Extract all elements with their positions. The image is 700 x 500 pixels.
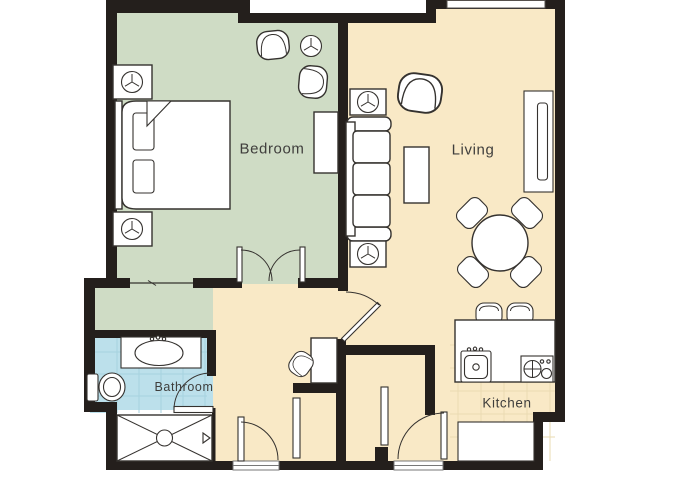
armchair-icon [396,71,444,114]
wall-bottom-3 [443,461,543,470]
armchair-icon [298,65,329,99]
desk-icon [311,338,337,383]
wall-step-bottom-left-v [106,402,117,470]
sofa-cushion [353,163,390,195]
closet-door-leaf [381,387,388,445]
window-icon [447,1,545,9]
nightstand-lamp-icon [113,212,152,246]
closet-floor [90,283,214,335]
tv-console-icon [524,91,553,192]
wall-vestibule-top [346,345,435,355]
vanity-sink-icon [121,336,201,368]
entry-sill-left [233,461,279,470]
sofa-icon [346,117,391,241]
armchair-icon [256,29,291,60]
end-table-lamp-icon [350,89,386,115]
floor-plan-canvas: Bedroom Living Bathroom Kitchen [0,0,700,500]
bed-headboard [115,101,122,209]
wall-top-bedroom [106,0,250,13]
coffee-table-icon [404,147,429,203]
wall-bottom-1 [106,461,233,470]
dresser-icon [314,112,338,173]
closet-door-leaf [293,398,300,458]
shower-icon [117,415,212,461]
wall-vestibule-right [425,345,435,415]
wall-right [555,0,565,421]
sofa-cushion [353,195,390,227]
pillow-icon [133,160,154,193]
wall-stub-entry [375,447,388,461]
end-table-lamp-icon [350,241,386,267]
kitchen-counter-icon [458,422,534,461]
kitchen-label: Kitchen [482,396,531,411]
floor-lamp-icon [301,36,322,57]
toilet-icon [87,373,125,401]
wall-desk-nook [293,383,346,393]
wall-bedroom-closet-1 [84,278,130,288]
entry-sill-right [394,461,443,470]
wall-notch-bottom [238,13,436,23]
floor-plan [0,0,700,500]
living-label: Living [452,142,495,159]
tv-icon [538,103,548,180]
bathroom-label: Bathroom [155,380,214,394]
sofa-cushion [353,131,390,163]
bedroom-label: Bedroom [239,141,304,158]
wall-bathroom-right [207,330,216,376]
wall-bottom-2 [279,461,394,470]
dining-table-icon [472,215,528,271]
nightstand-lamp-icon [113,65,152,99]
stove-icon [521,356,553,382]
kitchen-sink-icon [461,347,491,382]
wall-bedroom-closet-2 [193,278,242,288]
